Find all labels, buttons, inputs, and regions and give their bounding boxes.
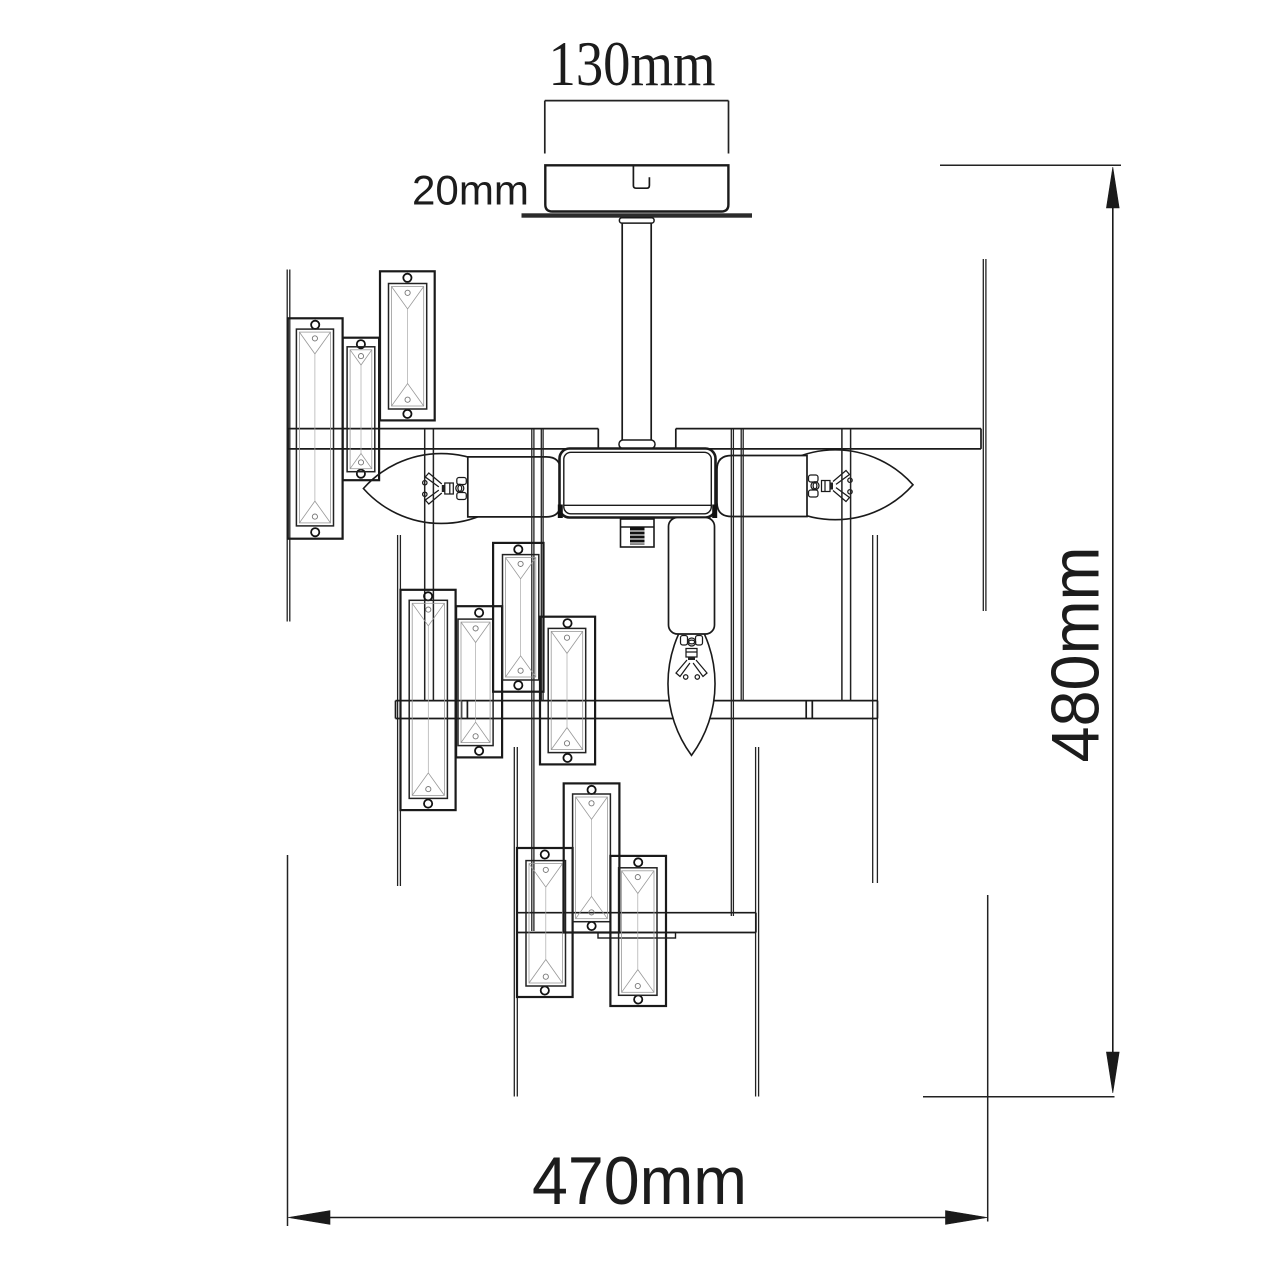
svg-text:20mm: 20mm <box>412 167 529 214</box>
svg-text:480mm: 480mm <box>1038 547 1114 763</box>
svg-text:470mm: 470mm <box>532 1143 747 1219</box>
svg-text:130mm: 130mm <box>549 29 716 99</box>
